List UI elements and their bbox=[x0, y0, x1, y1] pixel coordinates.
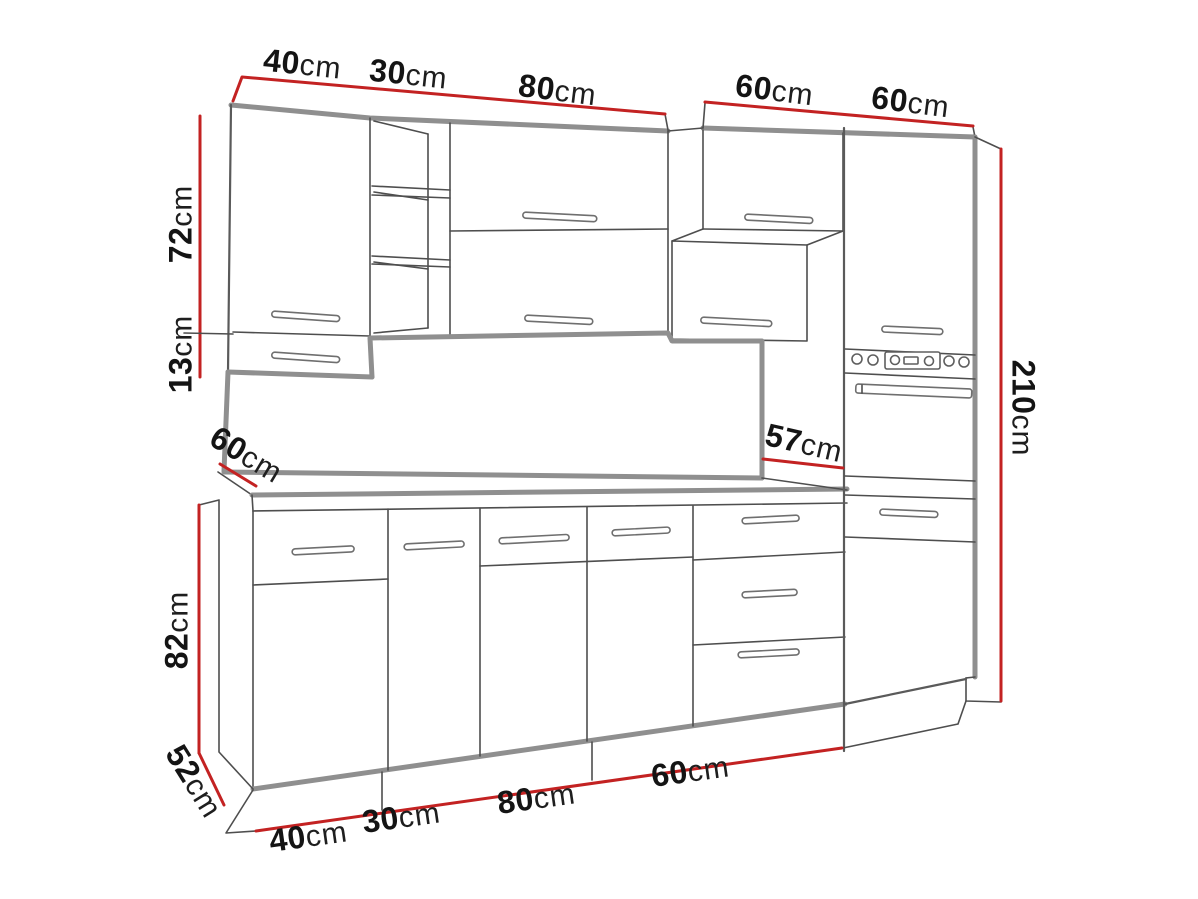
hood-top-cab-bottom bbox=[703, 229, 843, 231]
countertop-front-top-edge bbox=[252, 489, 847, 495]
tallcab-side-top-edge bbox=[975, 137, 1001, 149]
wall40-handle-upper bbox=[272, 311, 340, 322]
wall40-divider bbox=[233, 332, 370, 336]
wall40-handle-lower bbox=[272, 352, 340, 363]
oven-display-knob-right bbox=[925, 357, 934, 366]
drawerunit-divider-1 bbox=[693, 552, 845, 560]
base-bottom-edge bbox=[253, 704, 845, 789]
dimension-labels: 40cm 30cm 80cm 60cm 60cm 72cm 13cm 60cm … bbox=[158, 42, 1041, 859]
base30-handle bbox=[404, 541, 464, 550]
dimension-lines bbox=[184, 77, 1001, 831]
wall-cabinet-top-edge-right bbox=[703, 128, 975, 137]
shelf-bottom-diagonal bbox=[374, 328, 428, 333]
wall80-handle-upper bbox=[523, 212, 597, 222]
countertop-left-slab-edge bbox=[252, 495, 253, 511]
shelf-2-front bbox=[372, 256, 450, 267]
wall80-handle-lower bbox=[525, 315, 593, 325]
hood-box-face bbox=[672, 241, 807, 341]
wall40-left-edge bbox=[228, 105, 231, 372]
tallcab-top-door-handle bbox=[882, 326, 943, 335]
oven-display-window bbox=[904, 357, 918, 364]
oven-knob-3 bbox=[944, 356, 954, 366]
wall80-divider bbox=[450, 229, 668, 231]
oven-knob-1 bbox=[852, 354, 862, 364]
dim-label-bottom-40: 40cm bbox=[267, 812, 350, 859]
dim-label-top-80: 80cm bbox=[516, 67, 598, 112]
hood-top-cab-handle bbox=[745, 214, 813, 224]
dim-label-72: 72cm bbox=[163, 185, 199, 264]
drawerunit-handle-2 bbox=[742, 589, 797, 598]
tallcab-drawer-bottom-line bbox=[845, 537, 975, 542]
countertop-back-edge bbox=[224, 472, 762, 478]
drawerunit-handle-1 bbox=[742, 515, 799, 524]
top-face-corner-right bbox=[703, 103, 705, 128]
hood-box-handle bbox=[701, 317, 772, 327]
base40-handle bbox=[292, 546, 354, 555]
diagram-canvas: 40cm 30cm 80cm 60cm 60cm 72cm 13cm 60cm … bbox=[0, 0, 1198, 899]
base80-handle-right bbox=[612, 527, 670, 536]
oven-display-knob-left bbox=[891, 356, 900, 365]
oven-knob-2 bbox=[868, 355, 878, 365]
dim-label-52: 52cm bbox=[158, 738, 230, 824]
shelf-inner-top-diagonal bbox=[374, 121, 428, 134]
plinth-side-edge bbox=[226, 790, 256, 833]
dim-label-bottom-60: 60cm bbox=[649, 747, 732, 794]
wall40-bottom-edge bbox=[228, 372, 372, 377]
kitchen-dimension-diagram: 40cm 30cm 80cm 60cm 60cm 72cm 13cm 60cm … bbox=[0, 0, 1198, 899]
tallcab-drawer-handle bbox=[880, 509, 938, 518]
tallcab-plinth-notch bbox=[966, 677, 1001, 702]
drawerunit-divider-2 bbox=[693, 637, 845, 645]
oven-handle-bar bbox=[856, 384, 972, 398]
dim-line-top-left bbox=[233, 77, 665, 114]
drawerunit-handle-3 bbox=[738, 649, 799, 658]
tall-oven-cabinet bbox=[843, 128, 1001, 751]
base80-handle-left bbox=[499, 534, 569, 544]
countertop-front-bottom-edge bbox=[253, 503, 847, 511]
tallcab-bottom-edge bbox=[845, 679, 966, 704]
dim-label-bottom-80: 80cm bbox=[495, 774, 578, 821]
dim-label-bottom-30: 30cm bbox=[360, 793, 443, 840]
shelf-1-front bbox=[372, 186, 450, 198]
handles bbox=[272, 212, 943, 658]
base-side-panel bbox=[199, 500, 253, 789]
dim-label-82: 82cm bbox=[159, 591, 195, 670]
dim-label-210: 210cm bbox=[1005, 360, 1041, 457]
tallcab-plinth-bottom bbox=[843, 701, 966, 748]
oven-knob-4 bbox=[959, 357, 969, 367]
oven-door-bottom-lines bbox=[845, 476, 975, 499]
top-step-edge bbox=[668, 128, 703, 131]
dim-label-13: 13cm bbox=[163, 315, 199, 394]
base40-drawer-line bbox=[253, 579, 388, 585]
oven-door-handle bbox=[856, 384, 972, 398]
top-face-corner-left bbox=[665, 114, 668, 130]
